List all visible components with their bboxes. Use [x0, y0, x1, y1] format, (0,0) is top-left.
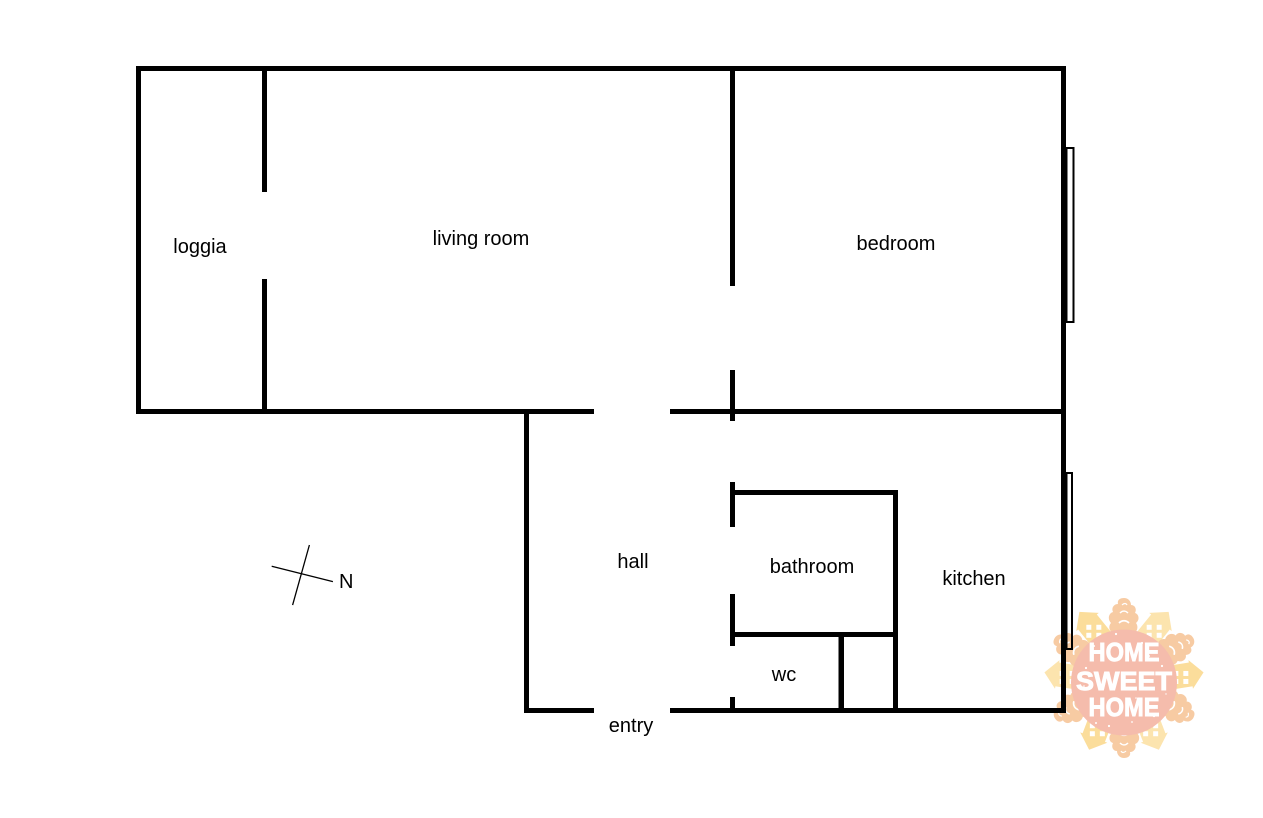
svg-text:loggia: loggia — [173, 236, 227, 258]
svg-text:living room: living room — [433, 228, 530, 250]
svg-text:bedroom: bedroom — [857, 233, 936, 255]
svg-text:HOME: HOME — [1089, 637, 1160, 667]
svg-text:entry: entry — [609, 715, 653, 737]
svg-text:hall: hall — [617, 551, 648, 573]
svg-text:HOME: HOME — [1089, 692, 1160, 722]
svg-text:N: N — [339, 571, 353, 593]
svg-text:kitchen: kitchen — [942, 568, 1005, 590]
svg-text:bathroom: bathroom — [770, 556, 855, 578]
svg-text:wc: wc — [771, 664, 796, 686]
